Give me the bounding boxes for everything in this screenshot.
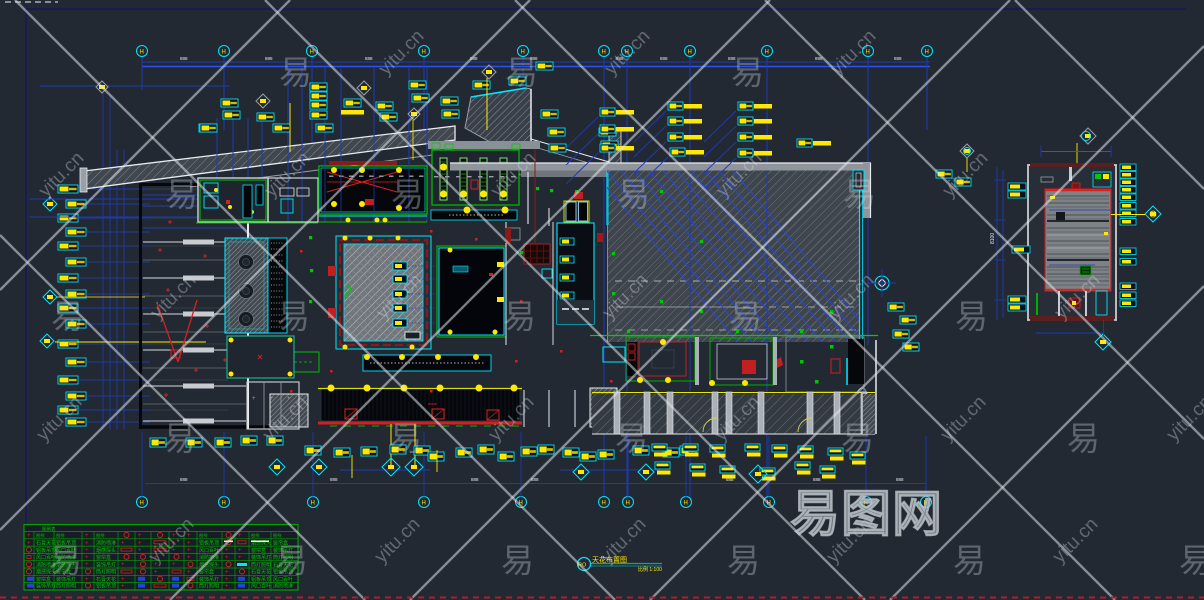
svg-text:图例: 图例 <box>56 532 64 539</box>
svg-text:+: + <box>121 540 125 546</box>
svg-text:易: 易 <box>841 420 874 457</box>
svg-text:装饰吊灯: 装饰吊灯 <box>36 583 56 590</box>
svg-text:+: + <box>238 533 242 539</box>
svg-text:筒灯照明: 筒灯照明 <box>251 561 271 568</box>
svg-text:+: + <box>121 562 125 568</box>
svg-text:易: 易 <box>163 420 196 457</box>
svg-text:+: + <box>225 555 229 561</box>
svg-text:H: H <box>140 501 144 507</box>
svg-text:易: 易 <box>501 542 534 579</box>
svg-text:易: 易 <box>275 542 308 579</box>
svg-text:888: 888 <box>365 56 373 61</box>
svg-text:888: 888 <box>180 56 188 61</box>
svg-text:铝板吊顶: 铝板吊顶 <box>251 576 271 583</box>
svg-text:易: 易 <box>51 298 84 335</box>
svg-text:易: 易 <box>729 298 762 335</box>
svg-text:+: + <box>187 555 191 561</box>
svg-text:+: + <box>225 577 229 583</box>
svg-text:+: + <box>138 533 142 539</box>
svg-text:石膏天花: 石膏天花 <box>96 576 116 583</box>
svg-text:易: 易 <box>389 420 422 457</box>
svg-text:H: H <box>422 501 426 507</box>
svg-text:+: + <box>238 548 242 554</box>
svg-text:烟感探头: 烟感探头 <box>96 547 116 554</box>
svg-text:H: H <box>688 50 692 56</box>
svg-text:888: 888 <box>330 477 338 482</box>
svg-text:+: + <box>225 548 229 554</box>
svg-text:+: + <box>85 548 89 554</box>
svg-text:888: 888 <box>813 477 821 482</box>
svg-text:消防喷淋: 消防喷淋 <box>273 583 293 590</box>
svg-text:+: + <box>85 555 89 561</box>
svg-text:+: + <box>85 577 89 583</box>
svg-text:+: + <box>121 584 125 590</box>
svg-text:8100: 8100 <box>990 233 996 244</box>
svg-text:易: 易 <box>505 54 538 91</box>
svg-text:易: 易 <box>731 54 764 91</box>
svg-text:888: 888 <box>180 477 188 482</box>
svg-text:888: 888 <box>896 477 904 482</box>
svg-text:H: H <box>765 50 769 56</box>
svg-text:H: H <box>222 50 226 56</box>
svg-text:图例: 图例 <box>199 532 207 539</box>
svg-text:易图网: 易图网 <box>790 486 943 542</box>
svg-text:H: H <box>422 50 426 56</box>
svg-text:易: 易 <box>279 54 312 91</box>
svg-text:装饰吊灯: 装饰吊灯 <box>199 576 219 583</box>
svg-text:H: H <box>684 501 688 507</box>
svg-text:H: H <box>626 501 630 507</box>
svg-text:装饰吊灯: 装饰吊灯 <box>96 561 116 568</box>
svg-text:筒灯照明: 筒灯照明 <box>199 583 219 590</box>
svg-text:铝板吊顶: 铝板吊顶 <box>199 540 219 547</box>
svg-text:H: H <box>311 501 315 507</box>
svg-text:+: + <box>187 540 191 546</box>
svg-text:消防喷淋: 消防喷淋 <box>96 540 116 547</box>
svg-text:888: 888 <box>265 56 273 61</box>
svg-text:888: 888 <box>660 56 668 61</box>
svg-text:888: 888 <box>894 56 902 61</box>
svg-text:易: 易 <box>955 298 988 335</box>
svg-text:+: + <box>252 396 256 402</box>
svg-text:铝板吊顶: 铝板吊顶 <box>96 583 116 590</box>
svg-text:图例表: 图例表 <box>42 526 56 533</box>
svg-text:+: + <box>138 540 142 546</box>
svg-text:易: 易 <box>727 542 760 579</box>
svg-text:易: 易 <box>503 298 536 335</box>
svg-text:+: + <box>187 548 191 554</box>
svg-text:图例: 图例 <box>36 532 44 539</box>
svg-text:H: H <box>140 50 144 56</box>
svg-text:筒灯照明: 筒灯照明 <box>96 569 116 576</box>
svg-text:易: 易 <box>1067 420 1100 457</box>
svg-text:H: H <box>925 50 929 56</box>
svg-text:易: 易 <box>1179 542 1204 579</box>
svg-text:+: + <box>121 577 125 583</box>
svg-text:+: + <box>85 562 89 568</box>
svg-text:+: + <box>85 540 89 546</box>
svg-text:===: === <box>428 402 437 408</box>
svg-text:图例: 图例 <box>273 532 281 539</box>
svg-text:窗帘盒: 窗帘盒 <box>251 547 266 554</box>
svg-text:窗帘盒: 窗帘盒 <box>96 554 111 561</box>
svg-text:易: 易 <box>49 542 82 579</box>
svg-text:888: 888 <box>471 477 479 482</box>
svg-text:石膏天花: 石膏天花 <box>251 569 271 576</box>
svg-text:+: + <box>225 570 229 576</box>
svg-text:+: + <box>187 570 191 576</box>
svg-text:+: + <box>270 396 274 402</box>
svg-text:比例 1:100: 比例 1:100 <box>638 566 662 573</box>
svg-text:易: 易 <box>617 176 650 213</box>
svg-text:+: + <box>238 555 242 561</box>
svg-text:装饰吊灯: 装饰吊灯 <box>251 554 271 561</box>
svg-text:+: + <box>154 570 158 576</box>
svg-text:+: + <box>27 533 31 539</box>
svg-text:+: + <box>85 533 89 539</box>
svg-text:H: H <box>222 501 226 507</box>
svg-text:+: + <box>27 540 31 546</box>
svg-text:+: + <box>138 548 142 554</box>
svg-text:图例: 图例 <box>251 532 259 539</box>
svg-text:H: H <box>602 50 606 56</box>
svg-text:易: 易 <box>165 176 198 213</box>
svg-text:易: 易 <box>843 176 876 213</box>
svg-text:易: 易 <box>615 420 648 457</box>
svg-text:+: + <box>225 584 229 590</box>
svg-text:图例: 图例 <box>96 532 104 539</box>
svg-text:易: 易 <box>391 176 424 213</box>
svg-text:+: + <box>172 562 176 568</box>
svg-text:风口百叶: 风口百叶 <box>251 583 271 590</box>
svg-text:易: 易 <box>953 542 986 579</box>
svg-text:H: H <box>602 501 606 507</box>
svg-text:筒灯照明: 筒灯照明 <box>56 583 76 590</box>
svg-text:易: 易 <box>277 298 310 335</box>
